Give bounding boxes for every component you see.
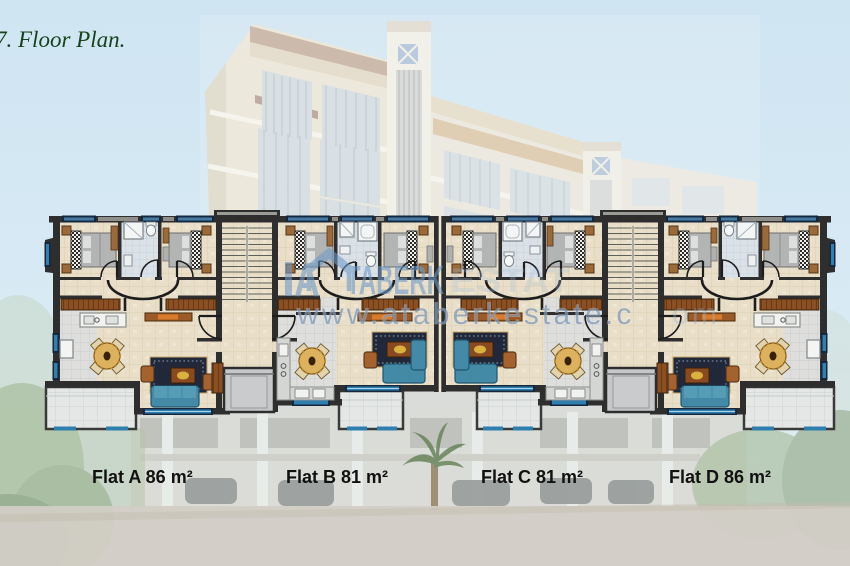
svg-text:Flat B 81 m²: Flat B 81 m²: [286, 467, 388, 487]
svg-text:Flat A 86 m²: Flat A 86 m²: [92, 467, 193, 487]
svg-text:Flat C 81 m²: Flat C 81 m²: [481, 467, 583, 487]
svg-text:ESTAT: ESTAT: [450, 262, 570, 300]
svg-text:TABERK: TABERK: [346, 257, 444, 303]
svg-text:Flat D 86 m²: Flat D 86 m²: [669, 467, 771, 487]
svg-text:7. Floor Plan.: 7. Floor Plan.: [0, 27, 125, 52]
svg-text:www.ataberkestate.c: www.ataberkestate.c: [296, 298, 635, 331]
svg-text:om: om: [672, 298, 720, 331]
